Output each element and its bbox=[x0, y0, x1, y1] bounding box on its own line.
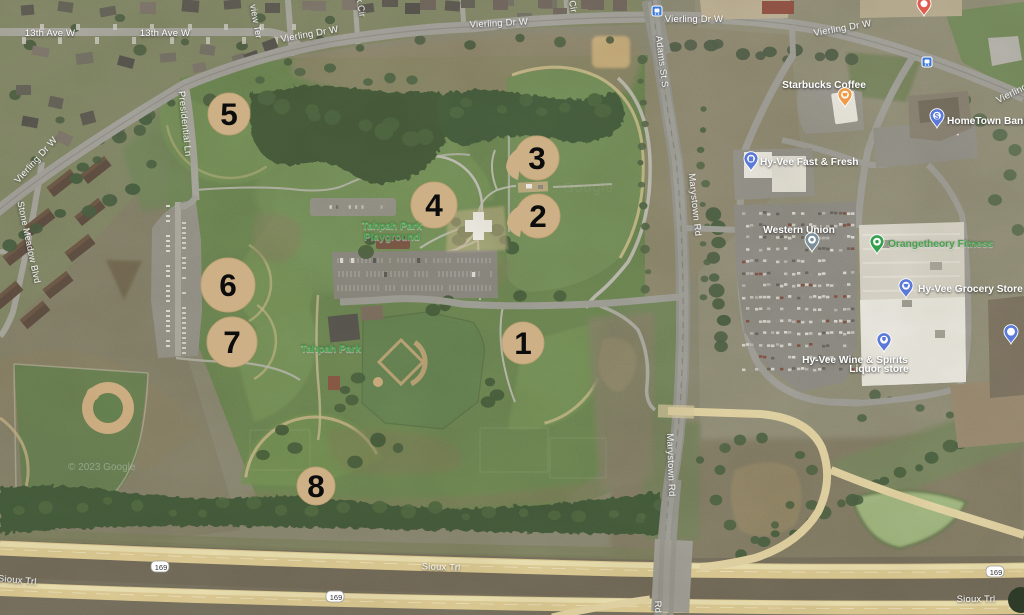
svg-text:6: 6 bbox=[219, 267, 237, 303]
svg-text:$: $ bbox=[935, 112, 940, 121]
svg-text:2: 2 bbox=[529, 198, 547, 234]
svg-text:Hy-Vee Grocery Store: Hy-Vee Grocery Store bbox=[918, 284, 1023, 295]
svg-text:13th Ave W: 13th Ave W bbox=[140, 28, 190, 39]
svg-text:13th Ave W: 13th Ave W bbox=[25, 28, 75, 39]
svg-text:4: 4 bbox=[425, 187, 443, 223]
svg-text:Tahpah Park: Tahpah Park bbox=[301, 344, 362, 355]
svg-text:Google: Google bbox=[563, 179, 614, 195]
svg-text:169: 169 bbox=[155, 563, 168, 572]
svg-text:Marystown Rd: Marystown Rd bbox=[664, 433, 677, 496]
svg-text:8: 8 bbox=[307, 468, 325, 504]
svg-text:Rd: Rd bbox=[652, 600, 663, 613]
svg-text:169: 169 bbox=[990, 568, 1003, 577]
svg-text:169: 169 bbox=[330, 593, 343, 602]
svg-text:Sioux Trl: Sioux Trl bbox=[957, 594, 996, 605]
svg-text:Cir: Cir bbox=[567, 0, 579, 13]
svg-text:3: 3 bbox=[528, 140, 546, 176]
svg-text:Western Union: Western Union bbox=[763, 225, 835, 236]
svg-text:Tahpah Park: Tahpah Park bbox=[362, 221, 423, 232]
svg-text:5: 5 bbox=[220, 96, 238, 132]
svg-text:Starbucks Coffee: Starbucks Coffee bbox=[782, 80, 866, 91]
svg-text:HomeTown Bank: HomeTown Bank bbox=[947, 116, 1024, 127]
svg-text:Orangetheory Fitness: Orangetheory Fitness bbox=[888, 239, 994, 250]
svg-text:© 2023 Google: © 2023 Google bbox=[68, 462, 136, 473]
svg-text:1: 1 bbox=[514, 325, 532, 361]
svg-text:Sioux Trl: Sioux Trl bbox=[422, 561, 461, 573]
svg-text:Liquor store: Liquor store bbox=[849, 364, 909, 375]
svg-text:7: 7 bbox=[223, 324, 241, 360]
svg-text:Playground: Playground bbox=[364, 232, 420, 243]
svg-text:Vierling Dr W: Vierling Dr W bbox=[665, 14, 723, 25]
svg-text:Hy-Vee Fast & Fresh: Hy-Vee Fast & Fresh bbox=[760, 157, 859, 168]
